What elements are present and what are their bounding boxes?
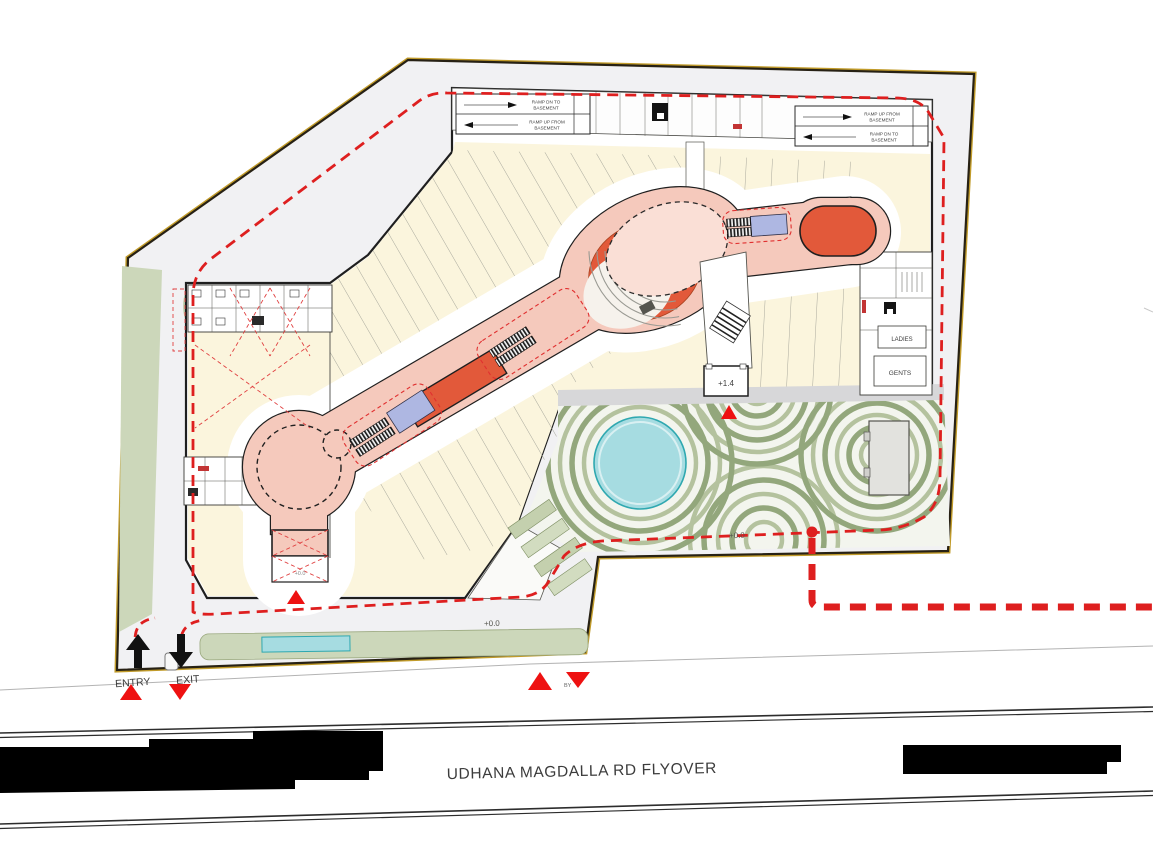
pavilion-tab-b <box>864 468 870 477</box>
right-fire-marker <box>862 300 866 313</box>
front-lawn <box>200 629 588 660</box>
entry-corridor: +0.0 <box>272 530 328 582</box>
fire-shaft-marker <box>733 124 742 129</box>
left-fire-marker <box>198 466 209 471</box>
front-green-strip <box>200 629 588 660</box>
ladies-label: LADIES <box>891 337 912 343</box>
level-plus14-label: +1.4 <box>718 379 734 388</box>
front-entry-marker-icon <box>528 672 552 690</box>
feature-stadium <box>800 206 876 256</box>
site-plan-drawing: UDHANA MAGDALLA RD FLYOVER <box>0 0 1153 860</box>
ramp-left-row2-line2: BASEMENT <box>534 126 559 131</box>
redaction-bar-right <box>903 745 1121 774</box>
entry-level-label: +0.0 <box>295 571 306 577</box>
ramp-right-row2-line1: RAMP DN TO <box>870 132 899 137</box>
garden-stair-corridor: +1.4 <box>700 252 752 396</box>
garden-pool <box>594 417 686 509</box>
flyover-top-line-b <box>0 712 1153 738</box>
exit-triangle-marker-icon <box>169 684 191 700</box>
level-zero-front: +0.0 <box>484 619 501 629</box>
by-marker-label: BY <box>564 683 572 689</box>
site-plan-canvas: UDHANA MAGDALLA RD FLYOVER <box>0 0 1153 860</box>
flyover-bottom-line-a <box>0 791 1153 824</box>
level-zero-garden: +0.0 <box>729 531 746 540</box>
ramp-left-row2-line1: RAMP UP FROM <box>529 120 565 125</box>
flyover-top-line-a <box>0 707 1153 733</box>
ramp-box-right: RAMP UP FROM BASEMENT RAMP DN TO BASEMEN… <box>795 106 928 146</box>
fire-route-node <box>807 527 818 538</box>
toilet-block-left <box>188 285 332 332</box>
court-notch <box>323 430 351 458</box>
ramp-right-row2-line2: BASEMENT <box>871 138 896 143</box>
escalator-icon <box>726 217 750 227</box>
edge-leader-line <box>1144 308 1153 312</box>
travelator-icon <box>750 214 787 236</box>
ramp-box-left: RAMP DN TO BASEMENT RAMP UP FROM BASEMEN… <box>456 94 590 134</box>
ramp-right-row1-line2: BASEMENT <box>869 118 894 123</box>
gents-label: GENTS <box>889 370 912 377</box>
redaction-bar-left <box>0 731 383 793</box>
flyover-bottom-line-b <box>0 796 1153 829</box>
garden-pavilion <box>869 421 909 495</box>
front-water-feature <box>262 636 350 652</box>
pavilion-tab-a <box>864 432 870 441</box>
ramp-left-row1-line1: RAMP DN TO <box>532 100 561 105</box>
ramp-left-row1-line2: BASEMENT <box>533 106 558 111</box>
lift-door <box>657 113 664 119</box>
core-block-right: LADIES GENTS <box>860 252 932 395</box>
road-name-label: UDHANA MAGDALLA RD FLYOVER <box>447 760 718 783</box>
ramp-right-row1-line1: RAMP UP FROM <box>864 112 900 117</box>
left-lift-icon <box>252 316 264 325</box>
